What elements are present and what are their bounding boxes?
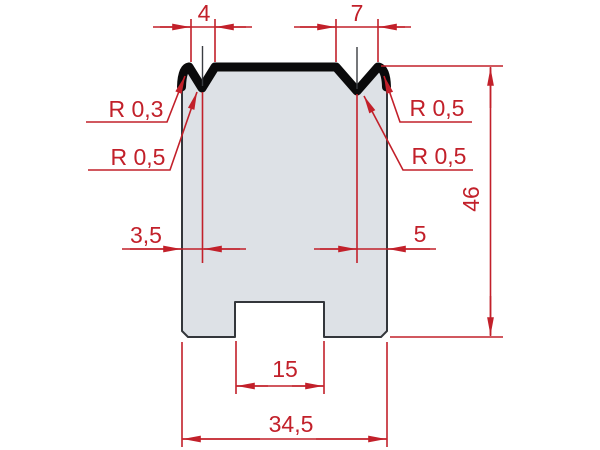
radius-label-left-shoulder: R 0,3 <box>109 96 164 122</box>
die-body <box>182 46 388 337</box>
dim-label-v2-offset: 5 <box>414 221 427 247</box>
leader-left-shoulder-radius: R 0,3 <box>86 76 185 122</box>
radius-label-right-shoulder: R 0,5 <box>410 95 465 121</box>
dim-label-total-width: 34,5 <box>269 411 314 437</box>
dim-label-v1-width: 4 <box>198 0 211 26</box>
leader-right-shoulder-radius: R 0,5 <box>384 76 472 122</box>
die-drawing: 4 7 R 0,3 R 0,5 R 0,5 R 0,5 46 <box>0 0 600 450</box>
dim-label-slot-width: 15 <box>272 356 298 382</box>
dim-slot-width: 15 <box>236 341 324 394</box>
technical-drawing-canvas: 4 7 R 0,3 R 0,5 R 0,5 R 0,5 46 <box>0 0 600 450</box>
dim-label-height: 46 <box>458 186 484 212</box>
dim-v2-width: 7 <box>294 0 411 62</box>
radius-label-right-groove: R 0,5 <box>412 143 467 169</box>
dim-label-v1-offset: 3,5 <box>130 222 162 248</box>
dim-label-v2-width: 7 <box>351 0 364 26</box>
radius-label-left-groove: R 0,5 <box>111 144 166 170</box>
